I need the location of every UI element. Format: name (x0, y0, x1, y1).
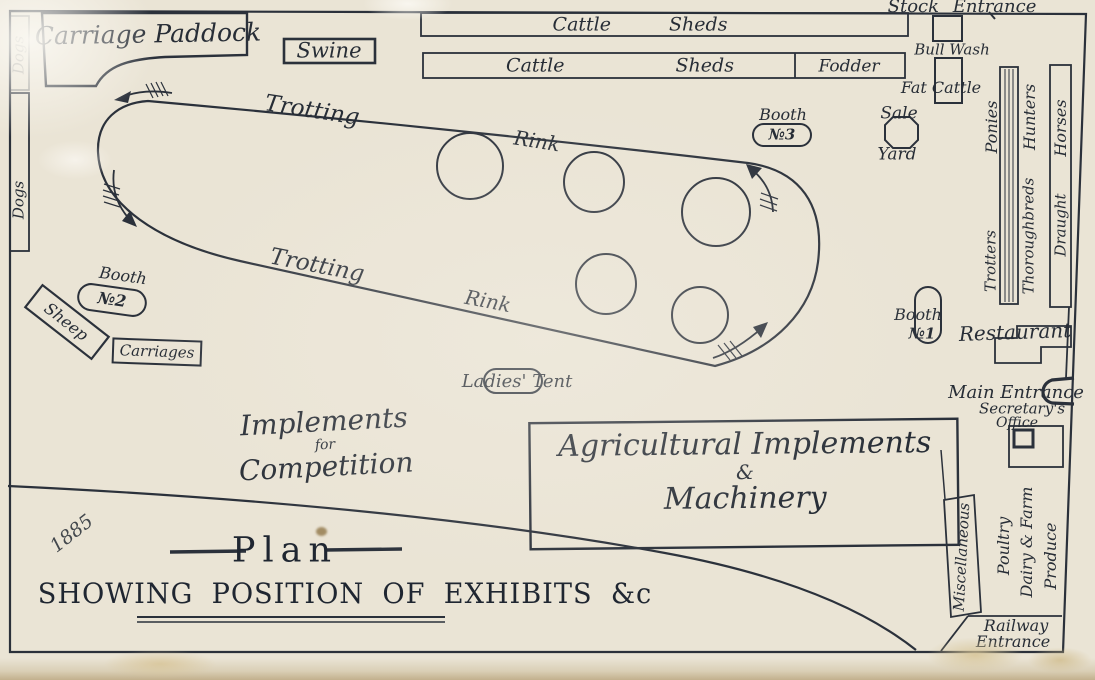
rink-direction-arrows (103, 82, 778, 360)
booth3-no: №3 (769, 128, 796, 143)
dogs-box (10, 93, 29, 251)
rink-ring (672, 287, 728, 343)
rink-ring (437, 133, 503, 199)
draught-label: Draught (1054, 193, 1069, 256)
bull-wash-pen (933, 16, 962, 41)
fat-cattle-label: Fat Cattle (901, 80, 981, 96)
rink-top-label: Rink (512, 127, 561, 154)
carriage-paddock-label: Carriage Paddock (35, 20, 262, 49)
railway-entrance-line2: Entrance (976, 634, 1050, 650)
yard-label: Yard (877, 147, 916, 164)
secretary-office-hut (1014, 430, 1033, 447)
rink-ring (576, 254, 636, 314)
swine-label: Swine (296, 41, 361, 62)
restaurant-label: Restaurant (958, 320, 1071, 344)
implements-for-competition-label: Implements for Competition (223, 403, 427, 486)
ponies-label: Ponies (984, 101, 1000, 154)
plan-subtitle: SHOWING POSITION OF EXHIBITS &c (38, 580, 652, 608)
exhibition-grounds-plan: Carriage Paddock Swine Cattle Sheds Catt… (0, 0, 1095, 680)
poultry-label-line3: Produce (1043, 522, 1059, 589)
poultry-label-line1: Poultry (996, 517, 1012, 575)
plan-title: Plan (232, 534, 338, 569)
hunters-label: Hunters (1022, 84, 1038, 150)
carriages-label: Carriages (119, 343, 194, 361)
booth1-label: Booth (894, 307, 942, 323)
agricultural-implements-label: Agricultural Implements & Machinery (535, 428, 956, 516)
trotting-rink-outline (98, 101, 819, 366)
horses-label: Horses (1053, 99, 1069, 156)
cattle-sheds-bottom-label: Cattle Sheds (506, 57, 734, 76)
ladies-tent-label: Ladies' Tent (462, 373, 573, 391)
booth3-label: Booth (759, 107, 807, 123)
cattle-sheds-top-label: Cattle Sheds (553, 16, 728, 35)
dogs-label: Dogs (12, 181, 27, 219)
fodder-label: Fodder (818, 59, 879, 76)
bull-wash-label: Bull Wash (914, 43, 989, 58)
thoroughbreds-label: Thoroughbreds (1022, 178, 1037, 295)
trotters-label: Trotters (984, 230, 999, 292)
booth2-no: №2 (97, 290, 127, 310)
secretarys-office-line2: Office (996, 416, 1038, 430)
sale-label: Sale (880, 106, 917, 123)
rink-ring (564, 152, 624, 212)
dogs-label-upper: Dogs (12, 36, 27, 74)
rink-ring (682, 178, 750, 246)
stock-entrance-label: Stock Entrance (888, 0, 1037, 16)
poultry-label-line2: Dairy & Farm (1019, 487, 1035, 598)
booth1-no: №1 (909, 327, 936, 342)
